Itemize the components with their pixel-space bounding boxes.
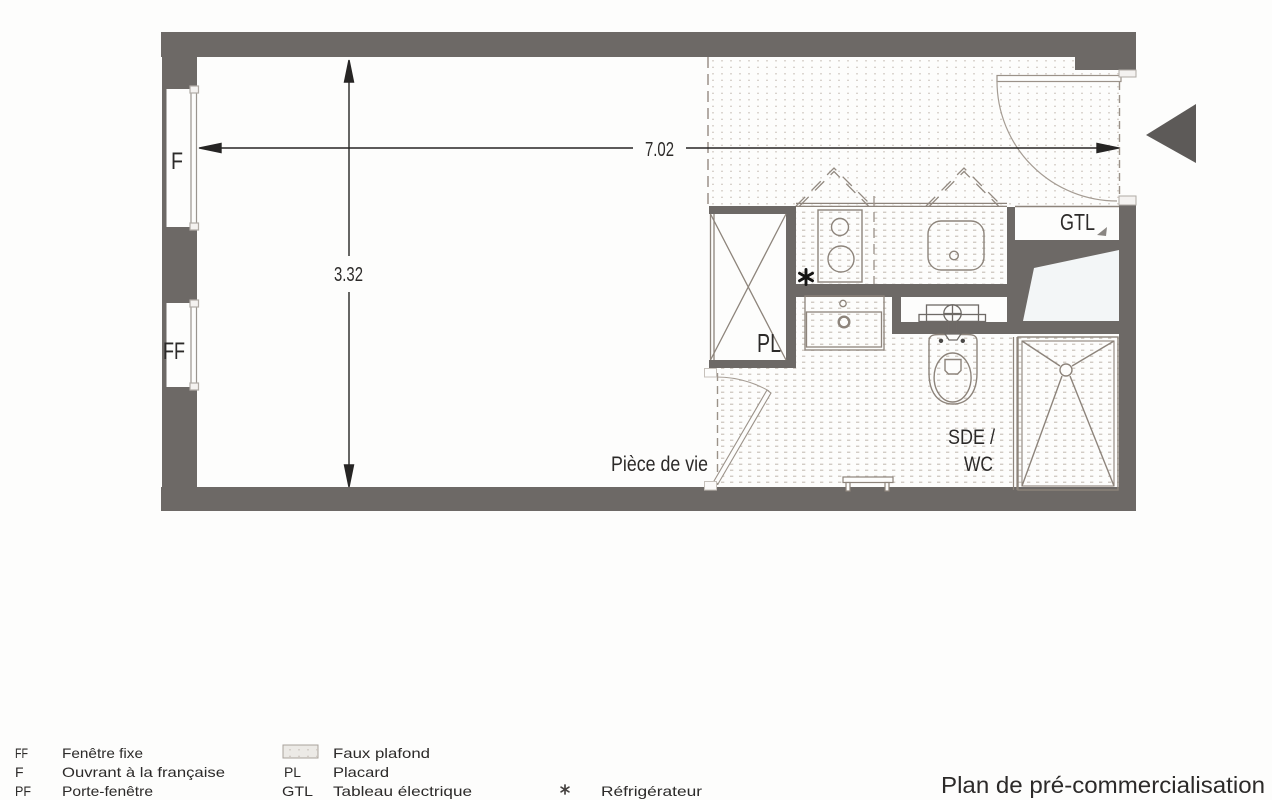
svg-text:WC: WC <box>964 453 993 476</box>
svg-text:Réfrigérateur: Réfrigérateur <box>601 783 702 799</box>
svg-text:Ouvrant à la française: Ouvrant à la française <box>62 764 225 780</box>
svg-text:FF: FF <box>15 745 28 761</box>
svg-text:Porte-fenêtre: Porte-fenêtre <box>62 783 153 799</box>
svg-text:7.02: 7.02 <box>645 139 674 161</box>
svg-text:PL: PL <box>284 764 301 780</box>
svg-text:Plan de pré-commercialisation: Plan de pré-commercialisation <box>941 772 1265 798</box>
svg-text:SDE /: SDE / <box>948 426 995 449</box>
svg-text:GTL: GTL <box>282 783 313 799</box>
svg-text:Pièce de vie: Pièce de vie <box>611 453 708 476</box>
svg-text:Placard: Placard <box>333 764 389 780</box>
svg-text:Faux plafond: Faux plafond <box>333 745 430 761</box>
svg-text:3.32: 3.32 <box>334 264 363 286</box>
svg-text:PL: PL <box>757 328 781 358</box>
svg-text:Fenêtre fixe: Fenêtre fixe <box>62 745 143 761</box>
svg-text:FF: FF <box>163 338 185 365</box>
svg-text:F: F <box>15 764 24 780</box>
svg-text:Tableau électrique: Tableau électrique <box>333 783 472 799</box>
svg-text:F: F <box>171 148 183 175</box>
svg-text:GTL: GTL <box>1060 209 1095 235</box>
svg-text:PF: PF <box>15 783 31 799</box>
